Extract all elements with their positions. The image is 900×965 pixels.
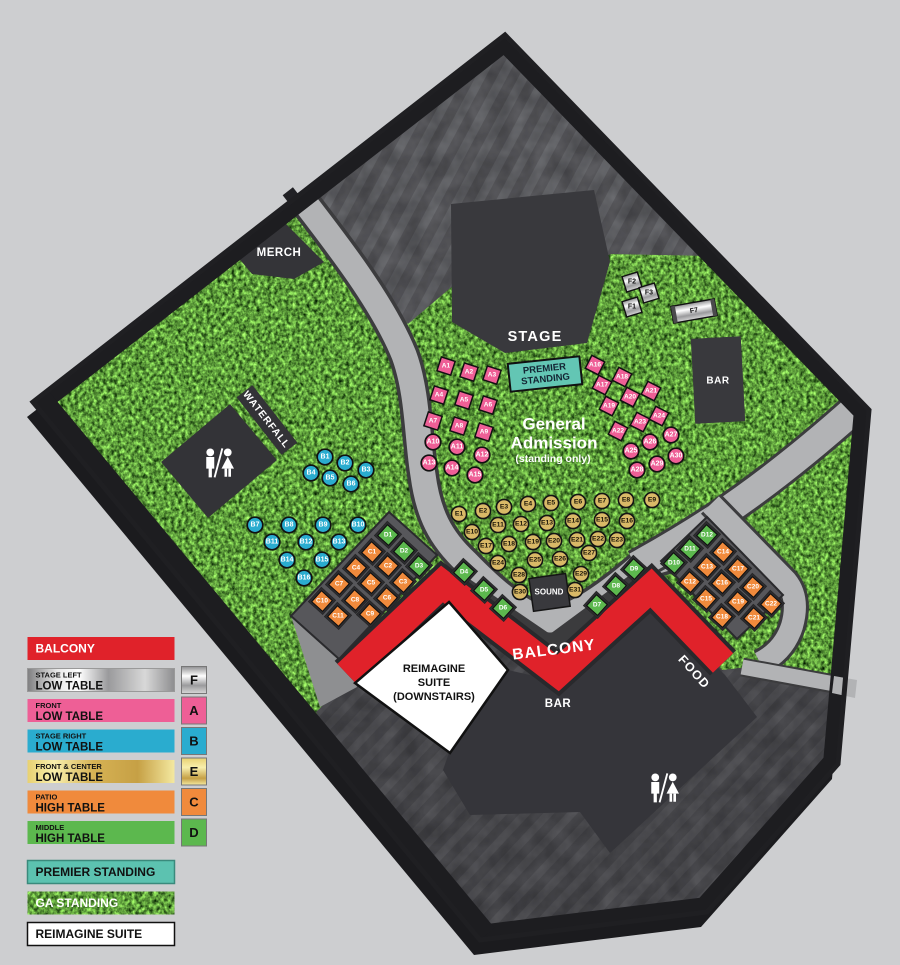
svg-text:B11: B11 xyxy=(266,539,279,546)
svg-text:D: D xyxy=(189,825,198,840)
svg-text:C15: C15 xyxy=(700,596,712,603)
svg-text:E18: E18 xyxy=(503,541,515,548)
svg-text:C10: C10 xyxy=(316,598,328,605)
svg-text:A17: A17 xyxy=(596,382,608,389)
svg-text:Admission: Admission xyxy=(511,434,598,453)
svg-text:A18: A18 xyxy=(616,374,628,381)
svg-text:E13: E13 xyxy=(541,520,553,527)
svg-text:D4: D4 xyxy=(460,569,469,576)
svg-text:E17: E17 xyxy=(480,543,492,550)
svg-text:C5: C5 xyxy=(367,580,376,587)
svg-text:A10: A10 xyxy=(427,439,440,446)
svg-text:PATIO: PATIO xyxy=(36,793,58,802)
svg-text:A3: A3 xyxy=(488,372,497,379)
svg-text:(standing only): (standing only) xyxy=(515,453,590,465)
svg-text:A2: A2 xyxy=(465,369,474,376)
svg-text:B8: B8 xyxy=(285,522,294,529)
svg-text:A9: A9 xyxy=(480,429,489,436)
svg-text:A22: A22 xyxy=(612,428,624,435)
svg-text:A5: A5 xyxy=(460,397,469,404)
svg-text:A29: A29 xyxy=(651,461,664,468)
svg-text:D5: D5 xyxy=(480,587,489,594)
svg-text:C4: C4 xyxy=(352,565,361,572)
svg-text:A30: A30 xyxy=(670,453,683,460)
svg-text:A21: A21 xyxy=(645,388,657,395)
svg-text:A15: A15 xyxy=(469,472,482,479)
svg-text:A1: A1 xyxy=(442,363,451,370)
svg-text:B: B xyxy=(189,734,198,749)
svg-text:SOUND: SOUND xyxy=(535,588,564,597)
svg-text:FRONT: FRONT xyxy=(36,701,62,710)
svg-text:F3: F3 xyxy=(645,290,653,297)
svg-text:A27: A27 xyxy=(665,432,678,439)
svg-text:C21: C21 xyxy=(748,615,760,622)
svg-text:C9: C9 xyxy=(366,611,375,618)
svg-text:E2: E2 xyxy=(479,508,488,515)
svg-text:E7: E7 xyxy=(598,498,607,505)
svg-text:F1: F1 xyxy=(628,304,636,311)
svg-text:A20: A20 xyxy=(624,394,636,401)
svg-text:C13: C13 xyxy=(701,564,713,571)
svg-text:C: C xyxy=(189,795,199,810)
svg-text:B1: B1 xyxy=(321,454,330,461)
svg-text:GA STANDING: GA STANDING xyxy=(36,896,119,910)
svg-text:B9: B9 xyxy=(319,522,328,529)
svg-text:MERCH: MERCH xyxy=(257,247,302,259)
svg-text:E3: E3 xyxy=(500,504,509,511)
svg-text:E16: E16 xyxy=(621,518,633,525)
svg-text:BAR: BAR xyxy=(706,376,729,387)
svg-text:SUITE: SUITE xyxy=(418,677,450,689)
svg-text:E27: E27 xyxy=(583,550,595,557)
svg-text:B16: B16 xyxy=(298,575,311,582)
svg-text:A4: A4 xyxy=(435,392,444,399)
svg-text:C12: C12 xyxy=(684,579,696,586)
svg-text:LOW TABLE: LOW TABLE xyxy=(36,711,104,723)
svg-text:C7: C7 xyxy=(335,581,344,588)
svg-text:E23: E23 xyxy=(611,537,623,544)
svg-text:E30: E30 xyxy=(514,589,526,596)
svg-text:E12: E12 xyxy=(515,521,527,528)
svg-text:C19: C19 xyxy=(732,599,744,606)
svg-text:D10: D10 xyxy=(668,560,680,567)
svg-text:E9: E9 xyxy=(648,497,657,504)
svg-text:C6: C6 xyxy=(383,595,392,602)
svg-text:D3: D3 xyxy=(415,563,424,570)
svg-text:A23: A23 xyxy=(634,419,646,426)
svg-text:C3: C3 xyxy=(399,579,408,586)
svg-text:PREMIER STANDING: PREMIER STANDING xyxy=(36,865,156,879)
svg-text:E14: E14 xyxy=(567,518,579,525)
svg-text:C20: C20 xyxy=(747,584,759,591)
svg-text:E21: E21 xyxy=(571,537,583,544)
svg-text:LOW TABLE: LOW TABLE xyxy=(36,681,104,693)
svg-text:E8: E8 xyxy=(622,497,631,504)
svg-text:A6: A6 xyxy=(484,402,493,409)
svg-text:C14: C14 xyxy=(717,549,729,556)
svg-text:E4: E4 xyxy=(524,501,533,508)
svg-text:E5: E5 xyxy=(547,500,556,507)
svg-text:D9: D9 xyxy=(630,566,639,573)
svg-text:LOW TABLE: LOW TABLE xyxy=(36,772,104,784)
svg-text:B10: B10 xyxy=(352,522,365,529)
svg-text:C8: C8 xyxy=(351,597,360,604)
svg-text:HIGH TABLE: HIGH TABLE xyxy=(36,833,106,845)
svg-text:REIMAGINE SUITE: REIMAGINE SUITE xyxy=(36,927,143,941)
svg-text:B15: B15 xyxy=(316,557,329,564)
svg-text:B12: B12 xyxy=(300,539,313,546)
svg-text:LOW TABLE: LOW TABLE xyxy=(36,742,104,754)
svg-text:BALCONY: BALCONY xyxy=(36,642,95,656)
svg-text:D1: D1 xyxy=(384,532,393,539)
svg-text:A28: A28 xyxy=(631,467,644,474)
svg-text:E1: E1 xyxy=(455,511,464,518)
svg-text:(DOWNSTAIRS): (DOWNSTAIRS) xyxy=(393,691,475,703)
svg-text:E6: E6 xyxy=(574,499,583,506)
svg-text:C11: C11 xyxy=(332,613,344,620)
svg-text:A11: A11 xyxy=(451,444,464,451)
svg-text:A19: A19 xyxy=(603,403,615,410)
svg-text:C22: C22 xyxy=(765,601,777,608)
svg-text:C18: C18 xyxy=(716,614,728,621)
svg-text:E25: E25 xyxy=(529,557,541,564)
svg-text:A16: A16 xyxy=(589,362,601,369)
svg-text:E15: E15 xyxy=(596,517,608,524)
svg-text:D6: D6 xyxy=(499,605,508,612)
svg-text:B13: B13 xyxy=(333,539,346,546)
svg-text:F: F xyxy=(190,673,198,688)
svg-text:D7: D7 xyxy=(593,602,602,609)
svg-text:REIMAGINE: REIMAGINE xyxy=(403,663,465,675)
svg-text:E24: E24 xyxy=(492,560,504,567)
svg-text:A24: A24 xyxy=(653,413,665,420)
svg-text:General: General xyxy=(522,415,585,434)
svg-text:A14: A14 xyxy=(446,465,459,472)
svg-text:STAGE: STAGE xyxy=(508,329,563,345)
svg-text:A26: A26 xyxy=(644,439,657,446)
svg-text:C2: C2 xyxy=(384,563,393,570)
svg-text:A25: A25 xyxy=(625,448,638,455)
svg-text:E26: E26 xyxy=(554,556,566,563)
svg-text:A8: A8 xyxy=(455,423,464,430)
svg-text:C16: C16 xyxy=(716,580,728,587)
svg-text:B4: B4 xyxy=(307,470,316,477)
svg-text:E: E xyxy=(190,764,199,779)
svg-text:A: A xyxy=(189,703,199,718)
svg-text:E11: E11 xyxy=(492,522,504,529)
svg-text:E22: E22 xyxy=(592,536,604,543)
svg-text:C1: C1 xyxy=(368,549,377,556)
svg-text:HIGH TABLE: HIGH TABLE xyxy=(36,803,106,815)
svg-text:B14: B14 xyxy=(281,557,294,564)
svg-text:A7: A7 xyxy=(429,418,438,425)
svg-text:B5: B5 xyxy=(326,475,335,482)
svg-text:B6: B6 xyxy=(347,481,356,488)
svg-text:E31: E31 xyxy=(569,587,581,594)
svg-text:F7: F7 xyxy=(689,307,698,315)
svg-text:BAR: BAR xyxy=(545,698,572,710)
svg-text:E28: E28 xyxy=(513,572,525,579)
svg-text:A13: A13 xyxy=(423,460,436,467)
svg-text:F2: F2 xyxy=(628,279,636,286)
svg-text:D12: D12 xyxy=(701,532,713,539)
svg-text:E19: E19 xyxy=(527,539,539,546)
svg-text:B7: B7 xyxy=(251,522,260,529)
svg-text:E10: E10 xyxy=(466,529,478,536)
svg-text:STAGE LEFT: STAGE LEFT xyxy=(36,671,83,680)
svg-text:A12: A12 xyxy=(476,452,489,459)
svg-text:D8: D8 xyxy=(612,583,621,590)
svg-text:MIDDLE: MIDDLE xyxy=(36,823,65,832)
svg-text:C17: C17 xyxy=(732,566,744,573)
svg-text:D2: D2 xyxy=(400,548,409,555)
svg-text:E20: E20 xyxy=(548,538,560,545)
svg-text:E29: E29 xyxy=(575,571,587,578)
svg-text:FRONT & CENTER: FRONT & CENTER xyxy=(36,762,103,771)
svg-text:STAGE RIGHT: STAGE RIGHT xyxy=(36,732,87,741)
svg-text:D11: D11 xyxy=(684,546,696,553)
svg-text:B3: B3 xyxy=(362,467,371,474)
svg-text:B2: B2 xyxy=(341,460,350,467)
